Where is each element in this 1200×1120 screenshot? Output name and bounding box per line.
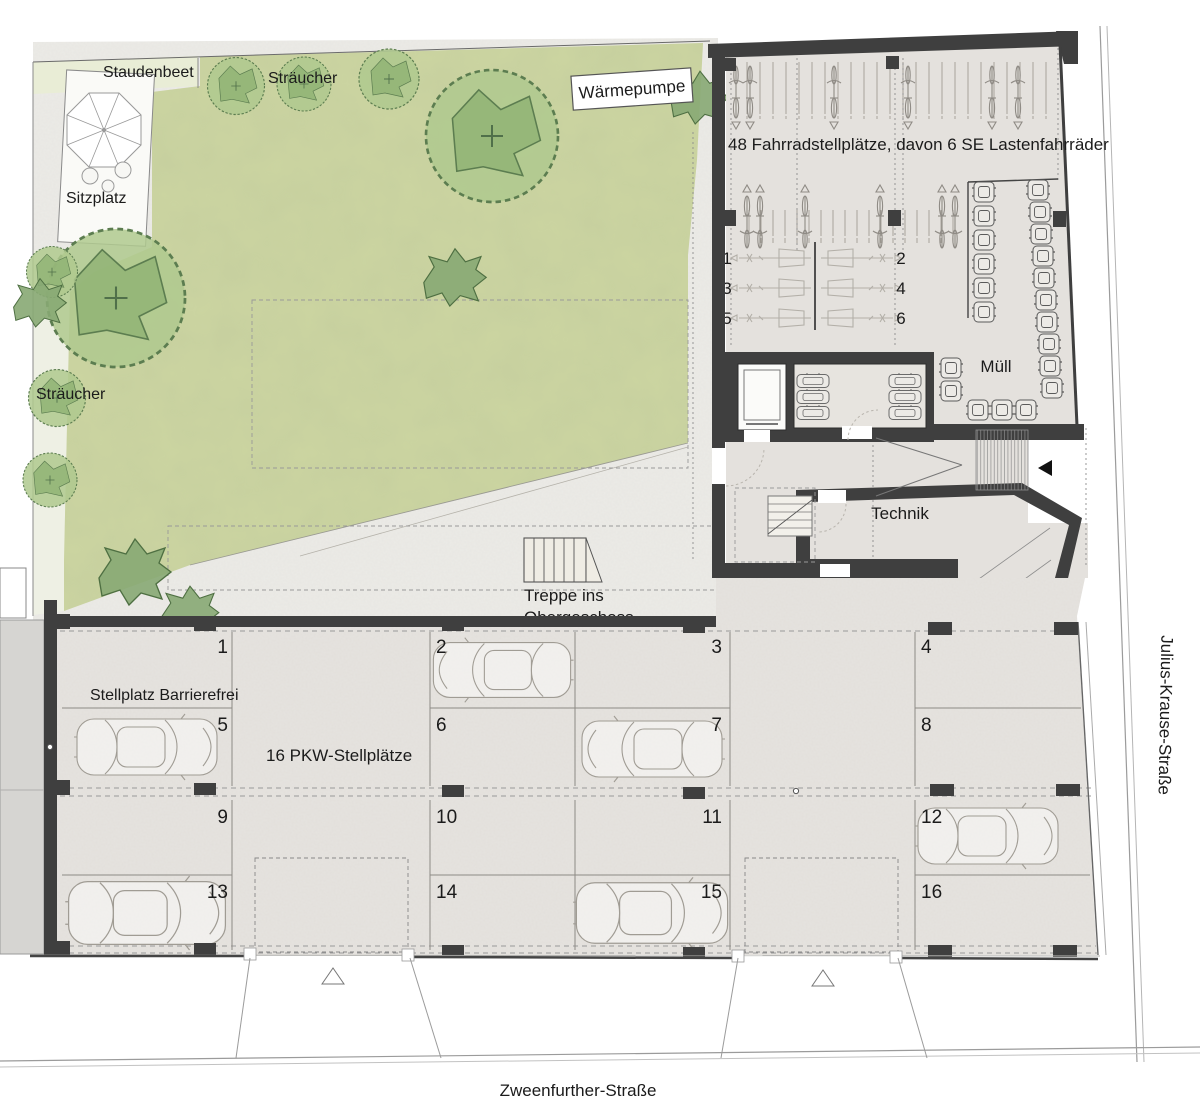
entrance-triangle-icon bbox=[322, 968, 344, 984]
bike-building: 1 3 5 2 4 6 Müll bbox=[708, 31, 1109, 604]
car-icon bbox=[433, 638, 573, 703]
street-bottom-label: Zweenfurther-Straße bbox=[500, 1081, 657, 1100]
car-icon bbox=[65, 876, 225, 950]
ramp-hatch bbox=[976, 430, 1028, 490]
spot-number: 10 bbox=[436, 807, 457, 828]
bike-rack-row-middle bbox=[748, 210, 962, 243]
waste-bin-wide-icon bbox=[889, 373, 921, 388]
seating-label: Sitzplatz bbox=[66, 190, 126, 207]
spot-number: 16 bbox=[921, 882, 942, 903]
street-bottom-curb-line bbox=[0, 1047, 1200, 1061]
waste-label: Müll bbox=[980, 357, 1011, 376]
parasol-icon bbox=[67, 93, 141, 167]
waste-bin-wide-icon bbox=[889, 389, 921, 404]
waste-bin-wide-icon bbox=[797, 389, 829, 404]
cargo-spot-number: 6 bbox=[896, 309, 905, 328]
neighbor-building-small bbox=[0, 568, 26, 618]
spot-number: 3 bbox=[711, 637, 722, 658]
tree-icon bbox=[359, 49, 419, 109]
spot-number: 6 bbox=[436, 715, 447, 736]
shrubs-top-label: Sträucher bbox=[268, 70, 338, 87]
parking-count-label: 16 PKW-Stellplätze bbox=[266, 746, 412, 765]
perennial-bed-label: Staudenbeet bbox=[103, 64, 194, 81]
bush-icon bbox=[14, 279, 67, 327]
spot-number: 7 bbox=[711, 715, 722, 736]
car-icon bbox=[582, 716, 725, 782]
spot-number: 9 bbox=[217, 807, 228, 828]
garden-area: Wärmepumpe Staudenbeet Sträucher Sitzpla… bbox=[14, 38, 738, 639]
shrub-icon bbox=[23, 453, 77, 507]
spot-number: 4 bbox=[921, 637, 932, 658]
waste-bin-wide-icon bbox=[797, 373, 829, 388]
spot-number: 2 bbox=[436, 637, 447, 658]
bike-parking-label: 48 Fahrradstellplätze, davon 6 SE Lasten… bbox=[728, 135, 1109, 154]
parking-area: Stellplatz Barrierefrei 16 PKW-Stellplät… bbox=[30, 578, 1106, 963]
tree-icon-large bbox=[426, 70, 558, 202]
tree-icon bbox=[208, 58, 265, 115]
street-right-curb-line bbox=[1100, 26, 1137, 1062]
street-right-curb-line-2 bbox=[1107, 26, 1144, 1062]
waste-bin-wide-icon bbox=[889, 405, 921, 420]
site-plan-page: Wärmepumpe Staudenbeet Sträucher Sitzpla… bbox=[0, 0, 1200, 1120]
tree-icon-large bbox=[47, 229, 185, 367]
wall-marker-dot bbox=[793, 788, 798, 793]
bike-rack-row-top bbox=[740, 62, 1054, 119]
street-right-label: Julius-Krause-Straße bbox=[1155, 635, 1177, 795]
site-plan: Wärmepumpe Staudenbeet Sträucher Sitzpla… bbox=[0, 0, 1200, 1120]
neighbor-buildings bbox=[0, 568, 44, 954]
car-icon bbox=[74, 714, 217, 780]
waste-bin-wide-icon bbox=[797, 405, 829, 420]
spot-number: 1 bbox=[217, 637, 228, 658]
cargo-spot-number: 2 bbox=[896, 249, 905, 268]
entrance-triangle-icon bbox=[812, 970, 834, 986]
neighbor-building-large bbox=[0, 620, 44, 954]
spot-number: 15 bbox=[701, 882, 722, 903]
wall-marker-dot bbox=[47, 744, 52, 749]
street-bottom-curb-line-2 bbox=[0, 1053, 1200, 1067]
cargo-spot-number: 4 bbox=[896, 279, 905, 298]
spot-number: 8 bbox=[921, 715, 932, 736]
utility-rooms bbox=[738, 364, 926, 430]
spot-number: 14 bbox=[436, 882, 458, 903]
spot-number: 5 bbox=[217, 715, 228, 736]
technik-label: Technik bbox=[871, 504, 929, 523]
stairs-label-line1: Treppe ins bbox=[524, 586, 604, 605]
accessible-spot-label: Stellplatz Barrierefrei bbox=[90, 687, 239, 704]
shrubs-left-label: Sträucher bbox=[36, 386, 106, 403]
spot-number: 11 bbox=[702, 807, 722, 828]
spot-number: 13 bbox=[207, 882, 228, 903]
spot-number: 12 bbox=[921, 807, 942, 828]
sidewalk-driveways bbox=[236, 958, 927, 1058]
